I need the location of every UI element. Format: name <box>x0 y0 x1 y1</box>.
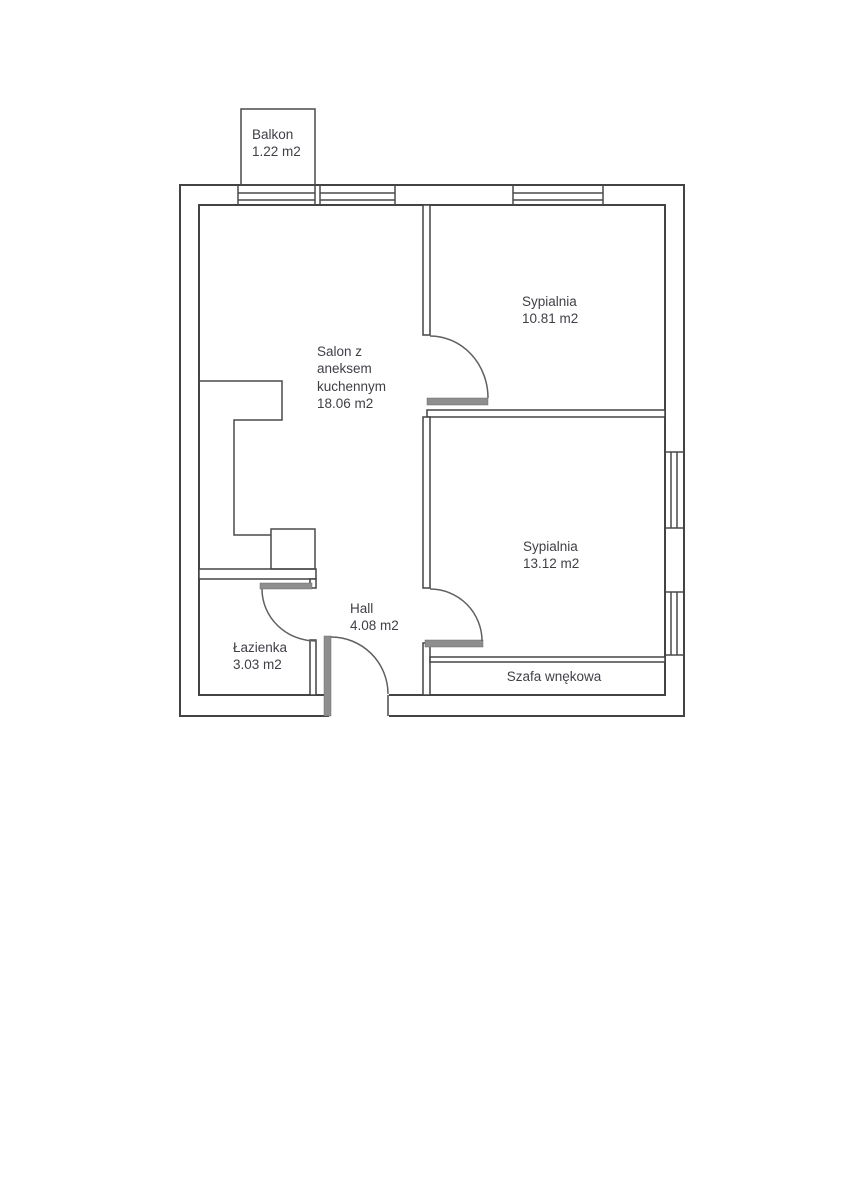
door-leaf-bedroom-bottom <box>425 640 483 647</box>
label-hall-area: 4.08 m2 <box>350 618 399 633</box>
label-sypialnia-dolna-name: Sypialnia <box>523 539 578 554</box>
label-balkon-name: Balkon <box>252 127 293 142</box>
wall-bathroom-right-lower <box>310 640 316 695</box>
label-sypialnia-dolna-area: 13.12 m2 <box>523 556 579 571</box>
label-salon-line3: kuchennym <box>317 379 386 394</box>
label-szafa: Szafa wnękowa <box>507 669 602 684</box>
floorplan-page: Balkon 1.22 m2 Salon z aneksem kuchennym… <box>0 0 849 1200</box>
label-balkon-area: 1.22 m2 <box>252 144 301 159</box>
wall-hall-bedroom-bottom-upper <box>423 417 430 588</box>
wall-wardrobe-front <box>430 657 665 662</box>
label-salon-line4: 18.06 m2 <box>317 396 373 411</box>
wall-salon-bedroom-top <box>423 205 430 335</box>
label-lazienka-area: 3.03 m2 <box>233 657 282 672</box>
label-hall-name: Hall <box>350 601 373 616</box>
door-leaf-bathroom <box>260 583 312 589</box>
floorplan-drawing: Balkon 1.22 m2 Salon z aneksem kuchennym… <box>0 0 849 1200</box>
label-szafa-name: Szafa wnękowa <box>507 669 602 684</box>
label-salon-line2: aneksem <box>317 361 372 376</box>
wall-bathroom-top <box>199 569 316 579</box>
wall-hall-bedroom-bottom-lower <box>423 643 430 695</box>
label-sypialnia-gorna-area: 10.81 m2 <box>522 311 578 326</box>
label-sypialnia-gorna-name: Sypialnia <box>522 294 577 309</box>
door-leaf-bedroom-top <box>427 398 488 405</box>
label-lazienka-name: Łazienka <box>233 640 288 655</box>
entrance-opening <box>329 689 389 718</box>
page-background <box>0 0 849 1200</box>
door-leaf-entrance <box>324 636 331 716</box>
wall-between-bedrooms <box>427 410 665 417</box>
label-salon-line1: Salon z <box>317 344 362 359</box>
